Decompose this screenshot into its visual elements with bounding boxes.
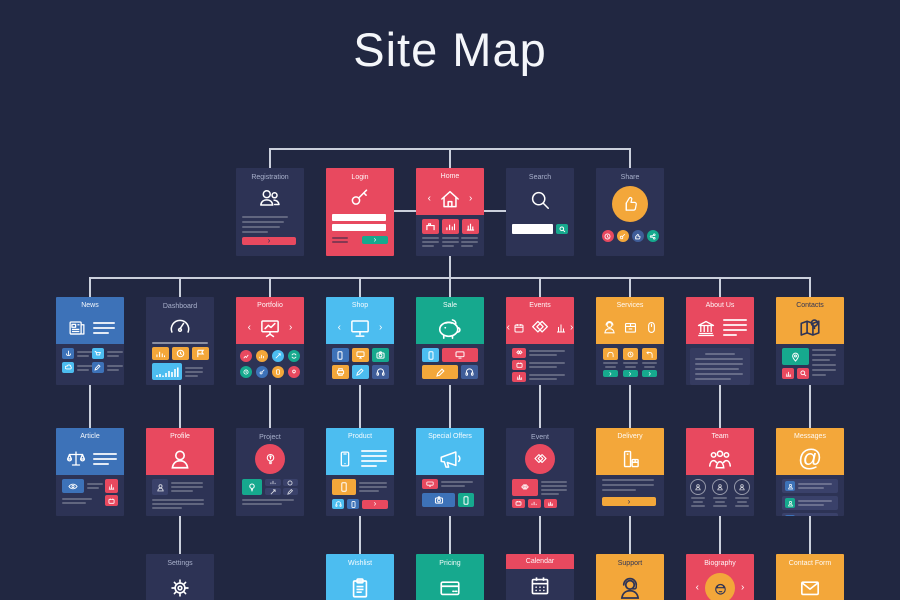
chevron-right-icon: › bbox=[469, 194, 472, 204]
password-field bbox=[332, 224, 386, 231]
offer-tile bbox=[422, 493, 455, 507]
card-title: Share bbox=[596, 173, 664, 182]
member-avatar bbox=[712, 479, 728, 495]
portfolio-badge-icon bbox=[272, 366, 284, 378]
card-title: About Us bbox=[706, 301, 735, 310]
chevron-right-icon: › bbox=[741, 583, 744, 593]
card-news: News bbox=[56, 297, 124, 385]
card-title: Wishlist bbox=[326, 559, 394, 568]
calendar-icon bbox=[506, 569, 574, 600]
card-title: Contact Form bbox=[776, 559, 844, 568]
key-icon bbox=[326, 182, 394, 212]
card-title: Biography bbox=[686, 559, 754, 568]
share-badge-icon bbox=[602, 230, 614, 242]
presentation-chart-icon bbox=[257, 315, 283, 341]
card-about-us: About Us bbox=[686, 297, 754, 385]
portfolio-badge-icon bbox=[288, 366, 300, 378]
thumbs-up-icon bbox=[612, 186, 648, 222]
chart-mini-icon bbox=[556, 323, 566, 333]
card-team: Team bbox=[686, 428, 754, 516]
card-title: Login bbox=[326, 173, 394, 182]
card-title: Search bbox=[506, 173, 574, 182]
chevron-left-icon: ‹ bbox=[507, 323, 510, 333]
buy-button: › bbox=[362, 500, 388, 509]
headset-icon bbox=[601, 319, 618, 336]
project-mini-tile bbox=[265, 488, 281, 495]
card-title: Portfolio bbox=[257, 301, 283, 310]
sitemap-poster: Site Map Registration › bbox=[0, 0, 900, 600]
service-button: › bbox=[623, 370, 638, 377]
card-profile: Profile bbox=[146, 428, 214, 516]
service-tile bbox=[623, 348, 638, 360]
card-portfolio: Portfolio ‹ › bbox=[236, 297, 304, 385]
bank-icon bbox=[694, 316, 718, 340]
search-input bbox=[512, 224, 553, 234]
delivery-boxes-icon bbox=[596, 442, 664, 475]
card-title: Sale bbox=[443, 301, 457, 310]
user-icon bbox=[146, 442, 214, 475]
share-badge-icon bbox=[617, 230, 629, 242]
message-avatar bbox=[785, 515, 795, 516]
offer-tile bbox=[422, 479, 438, 489]
chevron-left-icon: ‹ bbox=[248, 323, 251, 333]
card-title: Shop bbox=[352, 301, 368, 310]
register-button: › bbox=[242, 237, 296, 245]
product-tile bbox=[332, 479, 356, 495]
article-tile bbox=[105, 495, 118, 506]
scales-icon bbox=[64, 447, 88, 471]
card-delivery: Delivery › bbox=[596, 428, 664, 516]
card-wishlist: Wishlist bbox=[326, 554, 394, 600]
chevron-right-icon: › bbox=[570, 323, 573, 333]
card-dashboard: Dashboard bbox=[146, 297, 214, 385]
shop-tile bbox=[372, 365, 389, 379]
text-line bbox=[242, 231, 268, 233]
piggy-bank-icon bbox=[416, 311, 484, 344]
share-badge-icon bbox=[647, 230, 659, 242]
event-mini-tile bbox=[544, 499, 557, 508]
envelope-icon bbox=[776, 568, 844, 600]
lightbulb-icon bbox=[255, 444, 285, 474]
login-button: › bbox=[362, 236, 388, 244]
card-title: Project bbox=[236, 433, 304, 442]
card-project: Project bbox=[236, 428, 304, 516]
sale-tile bbox=[461, 365, 478, 379]
card-title: Special Offers bbox=[428, 432, 472, 441]
username-field bbox=[332, 214, 386, 221]
card-title: Event bbox=[506, 433, 574, 442]
card-title: Settings bbox=[146, 559, 214, 568]
at-sign-icon: @ bbox=[798, 447, 822, 471]
card-messages: Messages @ bbox=[776, 428, 844, 516]
shop-tile bbox=[352, 365, 369, 379]
card-search: Search bbox=[506, 168, 574, 256]
portfolio-badge-icon bbox=[256, 366, 268, 378]
megaphone-icon bbox=[416, 442, 484, 475]
card-product: Product bbox=[326, 428, 394, 516]
card-title: Profile bbox=[170, 432, 190, 441]
clipboard-icon bbox=[326, 568, 394, 600]
card-events: Events ‹ › bbox=[506, 297, 574, 385]
portfolio-badge-icon bbox=[240, 366, 252, 378]
sale-tile bbox=[422, 365, 458, 379]
card-title: Contacts bbox=[796, 301, 824, 310]
card-calendar: Calendar bbox=[506, 554, 574, 600]
card-share: Share bbox=[596, 168, 664, 256]
news-tile bbox=[92, 362, 104, 373]
card-contacts: Contacts bbox=[776, 297, 844, 385]
service-tile bbox=[642, 348, 657, 360]
widget-tile bbox=[192, 347, 209, 360]
card-title: Product bbox=[348, 432, 372, 441]
monitor-icon bbox=[347, 315, 373, 341]
magnifier-icon bbox=[506, 182, 574, 218]
portfolio-badge-icon bbox=[272, 350, 284, 362]
event-row-icon bbox=[512, 360, 526, 370]
event-mini-tile bbox=[528, 499, 541, 508]
card-title: Events bbox=[529, 301, 550, 310]
mouse-icon bbox=[643, 319, 660, 336]
house-icon bbox=[437, 186, 463, 212]
event-tile bbox=[512, 479, 538, 496]
card-support: Support bbox=[596, 554, 664, 600]
chevron-left-icon: ‹ bbox=[338, 323, 341, 333]
handshake-icon bbox=[525, 444, 555, 474]
card-title: Article bbox=[80, 432, 99, 441]
card-settings: Settings bbox=[146, 554, 214, 600]
location-tile bbox=[782, 348, 809, 365]
gear-icon bbox=[146, 568, 214, 600]
text-line bbox=[242, 216, 288, 218]
bar-chart-tile bbox=[152, 363, 182, 380]
calendar-mini-icon bbox=[514, 323, 524, 333]
gauge-icon bbox=[146, 311, 214, 339]
portfolio-badge-icon bbox=[256, 350, 268, 362]
project-mini-tile bbox=[283, 479, 299, 486]
card-registration: Registration › bbox=[236, 168, 304, 256]
card-article: Article bbox=[56, 428, 124, 516]
card-title: Services bbox=[617, 301, 644, 310]
project-mini-tile bbox=[283, 488, 299, 495]
card-title: Home bbox=[441, 172, 460, 181]
project-mini-tile bbox=[265, 479, 281, 486]
portfolio-badge-icon bbox=[288, 350, 300, 362]
product-mini-tile bbox=[332, 499, 344, 509]
card-title: Registration bbox=[236, 173, 304, 182]
headset-icon bbox=[596, 568, 664, 600]
text-line bbox=[242, 226, 280, 228]
worker-icon bbox=[705, 573, 735, 600]
card-home: Home ‹ › bbox=[416, 168, 484, 256]
widget-tile bbox=[152, 347, 169, 360]
feature-tile bbox=[462, 219, 479, 234]
widget-tile bbox=[172, 347, 189, 360]
service-button: › bbox=[642, 370, 657, 377]
card-title: News bbox=[81, 301, 99, 310]
message-avatar bbox=[785, 481, 795, 491]
card-title: Team bbox=[711, 432, 728, 441]
service-tile bbox=[603, 348, 618, 360]
card-pricing: Pricing bbox=[416, 554, 484, 600]
chevron-left-icon: ‹ bbox=[696, 583, 699, 593]
article-tile bbox=[105, 479, 118, 493]
chevron-right-icon: › bbox=[379, 323, 382, 333]
card-title: Messages bbox=[794, 432, 826, 441]
member-avatar bbox=[734, 479, 750, 495]
phone-icon bbox=[334, 447, 356, 471]
newspaper-icon bbox=[66, 317, 88, 339]
card-sale: Sale bbox=[416, 297, 484, 385]
contact-search-tile bbox=[797, 368, 809, 379]
card-title: Pricing bbox=[416, 559, 484, 568]
card-title: Support bbox=[596, 559, 664, 568]
feature-tile bbox=[422, 219, 439, 234]
card-contact-form: Contact Form bbox=[776, 554, 844, 600]
text-line bbox=[242, 221, 284, 223]
sale-tile bbox=[442, 348, 478, 362]
avatar bbox=[152, 479, 168, 495]
shop-tile bbox=[352, 348, 369, 362]
box-icon bbox=[622, 319, 639, 336]
news-tile bbox=[62, 362, 74, 373]
text-line bbox=[332, 237, 348, 239]
users-icon bbox=[236, 182, 304, 214]
event-mini-tile bbox=[512, 499, 525, 508]
portfolio-badge-icon bbox=[240, 350, 252, 362]
shop-tile bbox=[372, 348, 389, 362]
offer-tile bbox=[458, 493, 474, 507]
chevron-left-icon: ‹ bbox=[428, 194, 431, 204]
card-title: Delivery bbox=[617, 432, 642, 441]
share-badge-icon bbox=[632, 230, 644, 242]
feature-tile bbox=[442, 219, 459, 234]
card-services: Services bbox=[596, 297, 664, 385]
event-row-icon bbox=[512, 348, 526, 358]
contact-tile bbox=[782, 368, 794, 379]
handshake-icon bbox=[528, 318, 552, 338]
card-shop: Shop ‹ › bbox=[326, 297, 394, 385]
sale-tile bbox=[422, 348, 439, 362]
text-line bbox=[332, 241, 348, 243]
service-button: › bbox=[603, 370, 618, 377]
chevron-right-icon: › bbox=[289, 323, 292, 333]
project-tile bbox=[242, 479, 262, 495]
product-mini-tile bbox=[347, 499, 359, 509]
card-biography: Biography ‹ › bbox=[686, 554, 754, 600]
card-title: Dashboard bbox=[146, 302, 214, 311]
news-tile bbox=[92, 348, 104, 359]
article-tile bbox=[62, 479, 84, 493]
team-icon bbox=[686, 442, 754, 475]
shop-tile bbox=[332, 348, 349, 362]
search-button bbox=[556, 224, 568, 234]
card-login: Login › bbox=[326, 168, 394, 256]
news-tile bbox=[62, 348, 74, 359]
card-title: Calendar bbox=[526, 557, 554, 566]
map-icon bbox=[776, 311, 844, 344]
credit-card-icon bbox=[416, 568, 484, 600]
member-avatar bbox=[690, 479, 706, 495]
card-special-offers: Special Offers bbox=[416, 428, 484, 516]
track-button: › bbox=[602, 497, 656, 506]
message-avatar bbox=[785, 498, 795, 508]
shop-tile bbox=[332, 365, 349, 379]
card-event: Event bbox=[506, 428, 574, 516]
event-row-icon bbox=[512, 372, 526, 382]
